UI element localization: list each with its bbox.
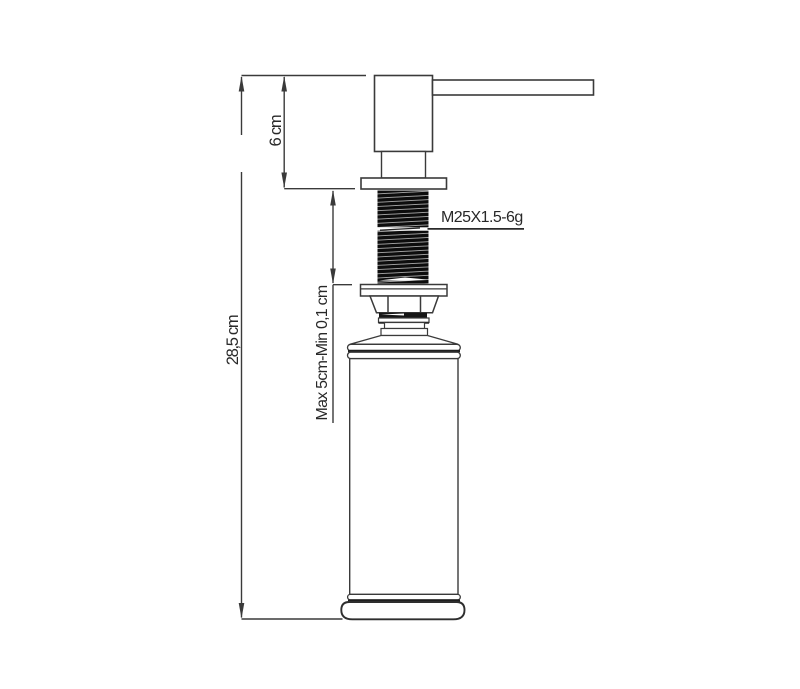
- svg-text:M25X1.5-6g: M25X1.5-6g: [441, 209, 523, 226]
- svg-text:Max 5cm-Min 0,1 cm: Max 5cm-Min 0,1 cm: [314, 285, 331, 420]
- svg-text:6 cm: 6 cm: [267, 115, 285, 146]
- svg-text:28,5 cm: 28,5 cm: [224, 315, 242, 365]
